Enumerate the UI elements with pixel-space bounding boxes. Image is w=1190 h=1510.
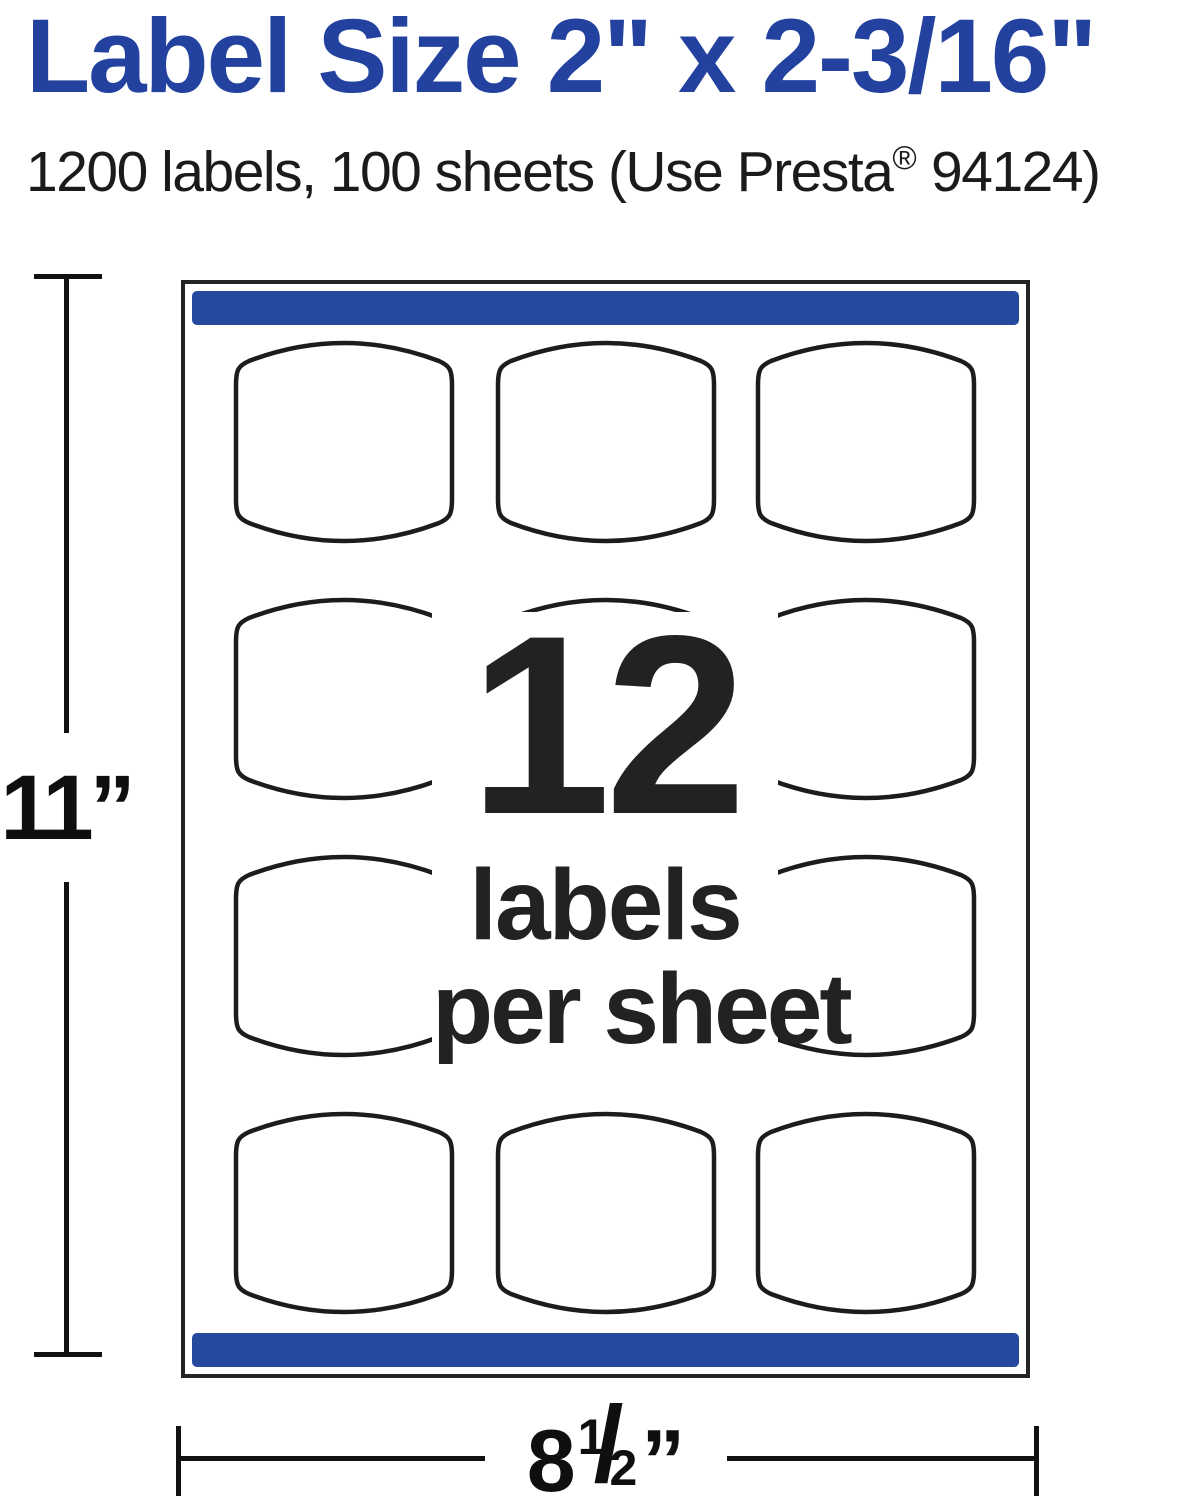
- product-diagram-page: { "title": "Label Size 2\" x 2-3/16\"", …: [0, 0, 1190, 1500]
- width-dimension-line-left: [178, 1456, 485, 1461]
- label-outline: [234, 853, 454, 1059]
- height-dimension-line-lower: [64, 882, 69, 1356]
- sheet-bottom-blue-bar: [192, 1333, 1019, 1367]
- labels-count-caption-line1: labels: [432, 855, 778, 955]
- label-outline: [756, 339, 976, 545]
- label-outline: [234, 596, 454, 802]
- page-title: Label Size 2" x 2-3/16": [26, 2, 1095, 112]
- label-outline: [234, 1110, 454, 1316]
- width-dimension-left-cap: [176, 1426, 181, 1496]
- label-outline: [496, 339, 716, 545]
- label-outline: [756, 596, 976, 802]
- subtitle-text-end: 94124): [917, 140, 1100, 204]
- height-dimension-line-upper: [64, 276, 69, 733]
- width-whole-number: 8: [527, 1417, 574, 1505]
- width-dimension-value: 8 1 / 2 ”: [485, 1398, 727, 1498]
- sheet-top-blue-bar: [192, 291, 1019, 325]
- height-dimension-bottom-cap: [34, 1352, 102, 1357]
- label-sheet-diagram: 12 labels per sheet: [181, 280, 1030, 1378]
- page-subtitle: 1200 labels, 100 sheets (Use Presta® 941…: [26, 140, 1100, 212]
- subtitle-text-start: 1200 labels, 100 sheets (Use Presta: [26, 140, 892, 204]
- label-outline: [496, 1110, 716, 1316]
- labels-per-sheet-callout: 12 labels per sheet: [432, 612, 778, 1070]
- label-outline: [234, 339, 454, 545]
- labels-count-caption-line2: per sheet: [432, 959, 778, 1059]
- height-dimension-value: 11”: [0, 762, 132, 854]
- width-dimension-line-right: [727, 1456, 1035, 1461]
- width-fraction-denominator: 2: [609, 1443, 637, 1493]
- width-dimension-right-cap: [1034, 1426, 1039, 1496]
- registered-trademark-symbol: ®: [892, 126, 916, 190]
- label-outline: [756, 1110, 976, 1316]
- width-inch-mark: ”: [641, 1417, 685, 1505]
- labels-count: 12: [432, 598, 778, 853]
